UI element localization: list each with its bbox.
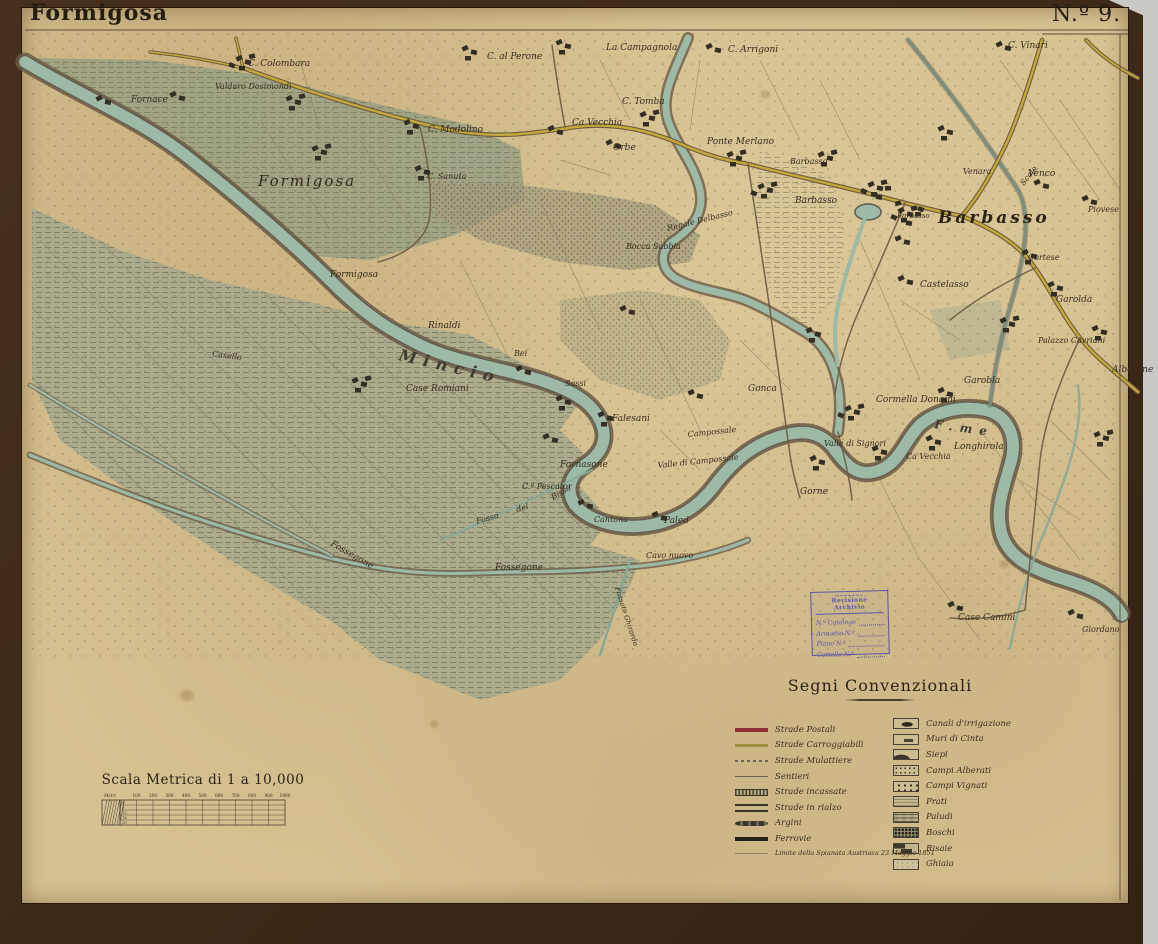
legend-row-sentieri: Sentieri — [735, 769, 895, 785]
scale-tick: 1000 — [280, 793, 291, 798]
legend-note: Limite della Spianata Austriaca 23 Maggi… — [735, 849, 1025, 857]
legend-row-canali: Canali d'irrigazione — [893, 716, 1043, 732]
map-label-gorne: Gorne — [800, 487, 828, 497]
legend-row-argini: Argini — [735, 816, 895, 832]
map-title: Formigosa — [30, 0, 168, 26]
map-label-formigosa: Formigosa — [329, 270, 378, 280]
legend-symbol-paludi — [893, 812, 919, 823]
scale-tick: 400 — [182, 793, 190, 798]
map-label-case-camini: Case Camini — [958, 613, 1016, 623]
map-label-barbasso: Barbasso — [896, 212, 930, 220]
legend-row-paludi: Paludi — [893, 810, 1043, 826]
terrain-regions — [25, 32, 1123, 700]
scale-tick: 100 — [133, 793, 141, 798]
stamp-field-line — [858, 628, 885, 637]
stamp-field-line — [859, 617, 884, 626]
legend-symbol-ferrovie — [735, 837, 768, 841]
building — [465, 56, 471, 61]
map-label-c-sanuta: C. Sanuta — [427, 172, 467, 181]
map-label-alberone: Alberone — [1111, 365, 1153, 375]
scale-tick: 500 — [199, 793, 207, 798]
building — [601, 422, 607, 427]
scale-tick: 900 — [265, 793, 273, 798]
scale-block: Scala Metrica di 1 a 10,000 Metri1002003… — [98, 772, 308, 836]
legend-row-incassate: Strade incassate — [735, 784, 895, 800]
legend-symbol-vignati — [893, 781, 919, 792]
building — [239, 66, 245, 71]
map-label-castelasso: Castelasso — [920, 280, 969, 290]
map-label-cormella-donaini: Cormella Donaini — [876, 395, 956, 405]
stamp-field-piano-n: Piano N.º — [816, 636, 884, 648]
map-label-case-romiani: Case Romiani — [406, 384, 469, 394]
legend-row-boschi: Boschi — [893, 825, 1043, 841]
stamp-field-cartella-n: Cartella N.º — [817, 646, 885, 658]
map-label-ca-vecchia: Ca Vecchia — [572, 118, 622, 128]
scale-row-label: 20 — [122, 820, 127, 825]
map-label-cortese: Cortese — [1028, 253, 1060, 262]
legend-label-sentieri: Sentieri — [775, 772, 809, 782]
building — [848, 416, 854, 421]
legend-label-ghiaia: Ghiaia — [926, 859, 954, 869]
legend-note-label: Limite della Spianata Austriaca 23 Maggi… — [775, 849, 935, 857]
building — [289, 106, 295, 111]
map-label-c-vinari: C. Vinari — [1008, 41, 1048, 51]
legend-label-carroggiabili: Strade Carroggiabili — [775, 740, 864, 750]
legend-symbol-rialzo — [735, 804, 768, 812]
map-label-falesani: Falesani — [611, 414, 650, 424]
map-label-c-colombara: C. Colombara — [248, 59, 310, 69]
map-label-c-tomba: C. Tomba — [622, 97, 665, 107]
legend-label-vignati: Campi Vignati — [926, 781, 987, 791]
legend-label-incassate: Strade incassate — [775, 787, 847, 797]
legend-row-alberati: Campi Alberati — [893, 763, 1043, 779]
map-label-la-campagnola: La Campagnola — [605, 43, 677, 53]
legend-symbol-ghiaia — [893, 859, 919, 870]
building — [559, 50, 565, 55]
stamp-field-label: Cartella N.º — [817, 650, 854, 658]
stamp-fields: N.º CatalogoArmadio N.ºPiano N.ºCartella… — [816, 615, 885, 659]
building — [730, 162, 736, 167]
scale-unit: Metri — [103, 793, 116, 798]
legend-label-muri: Muri di Cinta — [926, 734, 984, 744]
legend-label-canali: Canali d'irrigazione — [926, 719, 1011, 729]
map-label-ca-vecchia: Ca Vecchia — [906, 452, 951, 461]
scale-tick: 800 — [248, 793, 256, 798]
legend-label-paludi: Paludi — [926, 812, 953, 822]
building — [643, 122, 649, 127]
map-label-barbasso: Barbasso — [789, 157, 828, 166]
building — [407, 130, 413, 135]
scale-title: Scala Metrica di 1 a 10,000 — [98, 772, 308, 788]
stamp-title: Revisione Archivio — [815, 596, 883, 614]
map-label-cantona: Cantona — [594, 515, 628, 524]
legend-row-vignati: Campi Vignati — [893, 778, 1043, 794]
building — [813, 466, 819, 471]
map-label-sassi: Sassi — [565, 379, 586, 388]
map-label-barbasso: Barbasso — [794, 196, 838, 206]
building — [761, 194, 767, 199]
legend-row-ghiaia: Ghiaia — [893, 856, 1043, 872]
stamp-field-n-catalogo: N.º Catalogo — [816, 615, 884, 627]
legend-symbol-sentieri — [735, 776, 768, 777]
legend-symbol-postali — [735, 728, 768, 732]
map-label-giordano: Giordano — [1082, 625, 1120, 634]
legend-label-siepi: Siepi — [926, 750, 948, 760]
map-label-garolda: Garolda — [1056, 295, 1092, 305]
legend-row-siepi: Siepi — [893, 747, 1043, 763]
building — [315, 156, 321, 161]
map-label-cavo-nuovo: Cavo nuovo — [646, 551, 693, 560]
stamp-field-label: N.º Catalogo — [816, 619, 856, 627]
legend: Segni Convenzionali Strade PostaliStrade… — [730, 676, 1030, 709]
legend-symbol-incassate — [735, 789, 768, 796]
legend-title: Segni Convenzionali — [730, 676, 1030, 695]
map-label-piovese: Piovese — [1087, 205, 1119, 214]
scale-tick: 600 — [215, 793, 223, 798]
map-label-formigosa: Formigosa — [257, 172, 356, 190]
building — [1097, 442, 1103, 447]
stamp-field-label: Piano N.º — [816, 640, 846, 648]
map-label-c-arrigoni: C. Arrigoni — [728, 45, 778, 55]
building — [355, 388, 361, 393]
map-label-longhirola: Longhirola — [953, 442, 1004, 452]
scale-tick: 700 — [232, 793, 240, 798]
legend-label-postali: Strade Postali — [775, 725, 835, 735]
legend-label-prati: Prati — [926, 797, 947, 807]
map-label-venara: Venara — [963, 167, 992, 176]
building — [875, 456, 881, 461]
map-label-rinaldi: Rinaldi — [427, 321, 460, 331]
legend-symbol-boschi — [893, 827, 919, 838]
map-label-palazzo-cavriani: Palazzo Cavriani — [1037, 336, 1106, 345]
stamp-field-line — [857, 649, 885, 658]
legend-column-lines: Strade PostaliStrade CarroggiabiliStrade… — [735, 722, 895, 847]
legend-label-rialzo: Strade in rialzo — [775, 803, 842, 813]
map-label-bei: Bei — [513, 349, 528, 358]
map-label-bocca-sabbia: Bocca Sabbia — [625, 242, 681, 251]
building — [885, 186, 891, 191]
map-label-fossegone: Fossegone — [494, 563, 543, 573]
building — [809, 338, 815, 343]
legend-row-prati: Prati — [893, 794, 1043, 810]
map-label-garobla: Garobla — [964, 376, 1000, 386]
legend-row-postali: Strade Postali — [735, 722, 895, 738]
map-label-c-al-perone: C. al Perone — [487, 52, 542, 62]
legend-row-carroggiabili: Strade Carroggiabili — [735, 738, 895, 754]
legend-flourish — [845, 699, 915, 701]
legend-symbol-muri — [893, 734, 919, 745]
building — [1003, 328, 1009, 333]
map-label-ponte-merlano: Ponte Merlano — [706, 137, 775, 147]
map-label-valle-di-signori: Valle di Signori — [824, 439, 886, 448]
legend-note-symbol — [735, 853, 768, 854]
stamp-field-line — [849, 638, 885, 647]
legend-symbol-prati — [893, 796, 919, 807]
scale-bar: Metri10020030040050060070080090010004812… — [98, 788, 304, 832]
map-label-paled: Paled — [663, 516, 689, 526]
scale-tick: 200 — [149, 793, 157, 798]
legend-symbol-alberati — [893, 765, 919, 776]
legend-label-alberati: Campi Alberati — [926, 766, 991, 776]
map-label-fornace: Fornace — [130, 95, 168, 105]
map-label-fornasone: Fornasone — [559, 460, 608, 470]
scale-tick: 300 — [166, 793, 174, 798]
legend-label-argini: Argini — [775, 818, 802, 828]
archive-stamp: Revisione Archivio N.º CatalogoArmadio N… — [810, 590, 890, 656]
legend-label-ferrovie: Ferrovie — [775, 834, 811, 844]
map-sheet-scan: C. ColombaraValdaro DosimondiFornaceForm… — [0, 0, 1158, 944]
map-label-orbe: Orbe — [613, 143, 636, 153]
legend-symbol-mulattiere — [735, 760, 768, 763]
building — [418, 176, 424, 181]
legend-symbol-siepi — [893, 749, 919, 760]
building — [929, 446, 935, 451]
building — [941, 136, 947, 141]
sheet-number: N.º 9. — [1052, 2, 1121, 27]
legend-label-boschi: Boschi — [926, 828, 955, 838]
stamp-field-label: Armadio N.º — [816, 629, 855, 637]
legend-row-muri: Muri di Cinta — [893, 732, 1043, 748]
legend-symbol-argini — [735, 821, 768, 826]
map-label-barbasso: Barbasso — [937, 208, 1050, 228]
map-label-valdaro-dosimondi: Valdaro Dosimondi — [215, 82, 292, 91]
legend-row-rialzo: Strade in rialzo — [735, 800, 895, 816]
map-label-c-modolino: C. Modolino — [428, 125, 484, 135]
map-label-gonca: Gonca — [748, 384, 777, 394]
legend-symbol-canali — [893, 718, 919, 729]
legend-label-mulattiere: Strade Mulattiere — [775, 756, 852, 766]
stamp-field-armadio-n: Armadio N.º — [816, 625, 884, 637]
building — [871, 192, 877, 197]
legend-row-mulattiere: Strade Mulattiere — [735, 753, 895, 769]
legend-row-ferrovie: Ferrovie — [735, 831, 895, 847]
legend-symbol-carroggiabili — [735, 744, 768, 747]
building — [559, 406, 565, 411]
